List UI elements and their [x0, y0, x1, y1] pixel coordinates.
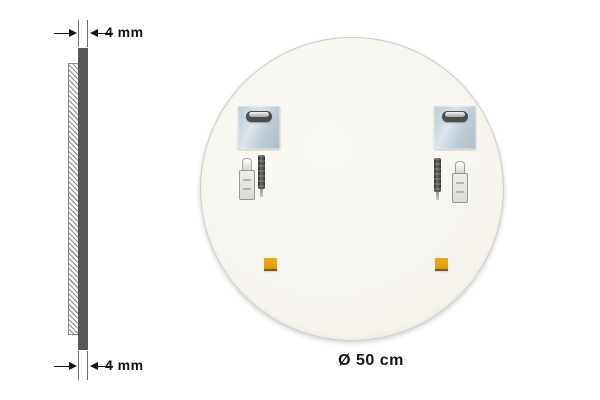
- mounting-plate-right: [434, 106, 476, 149]
- adhesive-pad-right: [435, 258, 448, 271]
- slot-highlight: [249, 112, 269, 117]
- adhesive-pad-left: [264, 258, 277, 271]
- extension-line: [87, 351, 88, 380]
- bottle-label-line: [456, 191, 464, 193]
- diameter-label: Ø 50 cm: [299, 352, 443, 370]
- screw-tip: [260, 189, 263, 197]
- extension-line: [78, 351, 79, 380]
- adhesive-bottle-right: [452, 173, 468, 203]
- arrow-head-icon: [90, 362, 98, 370]
- arrow-head-icon: [90, 29, 98, 37]
- extension-line: [78, 20, 79, 47]
- dimension-arrow-icon: [54, 29, 77, 38]
- arrow-head-icon: [69, 362, 77, 370]
- bottle-label-line: [243, 188, 251, 190]
- adhesive-bottle-left: [239, 170, 255, 200]
- keyhole-slot-icon: [246, 111, 272, 122]
- thickness-label-bottom: 4 mm: [105, 357, 144, 373]
- thickness-label-top: 4 mm: [105, 24, 144, 40]
- screw-bit-right: [434, 158, 441, 192]
- keyhole-slot-icon: [442, 111, 468, 122]
- screw-bit-left: [258, 155, 265, 189]
- mirror-side-view: 4 mm 4 mm: [0, 0, 180, 400]
- mirror-back-view: [200, 37, 504, 341]
- arrow-head-icon: [69, 29, 77, 37]
- extension-line: [87, 20, 88, 47]
- mirror-glass-edge: [78, 48, 88, 350]
- mounting-plate-left: [238, 106, 280, 149]
- bottle-label-line: [243, 179, 251, 181]
- dimension-arrow-icon: [54, 362, 77, 371]
- slot-highlight: [445, 112, 465, 117]
- bottle-label-line: [456, 182, 464, 184]
- screw-tip: [436, 192, 439, 200]
